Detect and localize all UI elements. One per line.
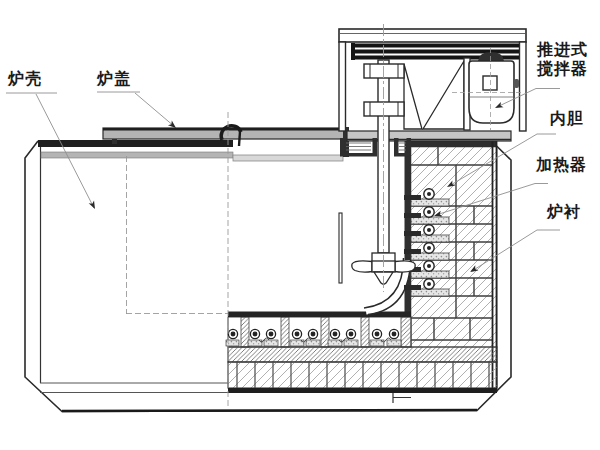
bottom-plate (228, 388, 497, 393)
label-furnace-shell: 炉壳 (8, 69, 42, 88)
label-inner-liner: 内胆 (550, 109, 584, 128)
motor-junction-box (483, 76, 497, 90)
bottom-brick-course (228, 362, 497, 388)
support-gusset (404, 64, 422, 129)
label-propeller-agitator: 推进式 搅拌器 (537, 40, 588, 78)
furnace-drawing (0, 0, 600, 450)
chamber-floor (228, 312, 411, 318)
leader-lid (97, 92, 175, 127)
label-heater: 加热器 (536, 155, 587, 174)
label-furnace-lining: 炉衬 (547, 202, 581, 221)
shell-top-rim (38, 140, 233, 147)
label-agitator-line2: 搅拌器 (537, 59, 588, 78)
leader-shell (6, 93, 94, 208)
bottom-fitting (393, 393, 411, 403)
label-furnace-lid: 炉盖 (97, 69, 131, 88)
motor-terminal (514, 79, 519, 88)
bottom-heating-elements (226, 317, 411, 347)
label-agitator-line1: 推进式 (537, 40, 588, 59)
top-mounting-plate (347, 131, 511, 141)
thermocouple-rod (339, 213, 342, 283)
propeller-blade (395, 261, 415, 272)
propeller-blade (352, 261, 372, 272)
castable-layer (228, 347, 497, 362)
support-gusset (423, 61, 464, 129)
furnace-cross-section-diagram: 炉壳 炉盖 推进式 搅拌器 内胆 加热器 炉衬 (0, 0, 600, 450)
